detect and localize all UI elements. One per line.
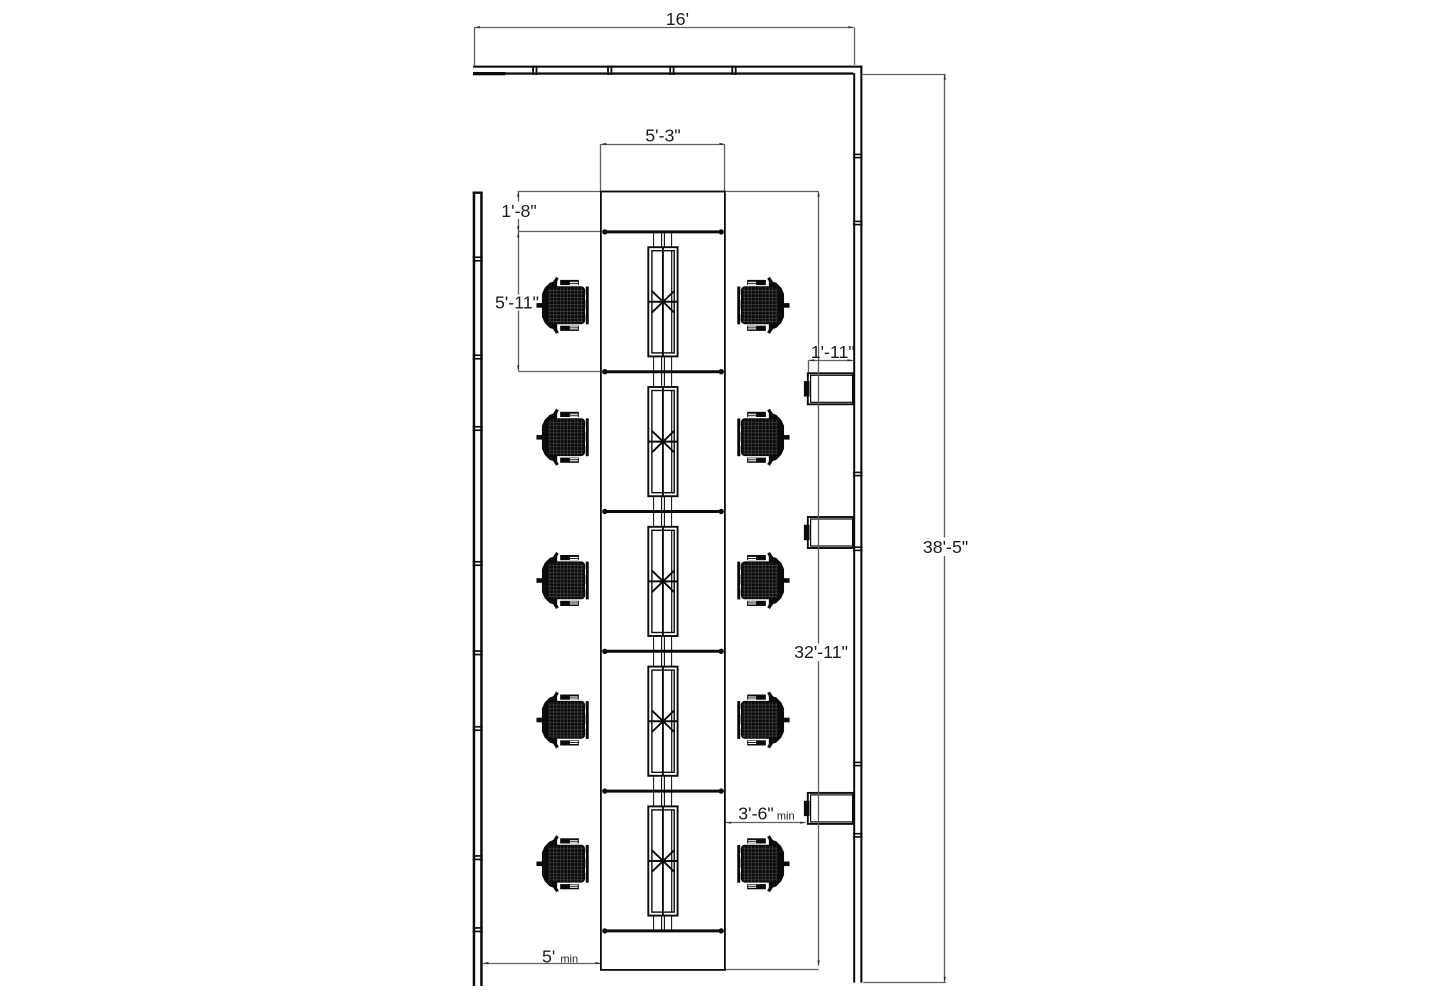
svg-text:3'-6": 3'-6": [738, 803, 773, 823]
svg-text:5'-11": 5'-11": [495, 292, 539, 312]
svg-text:38'-5": 38'-5": [923, 537, 968, 557]
svg-text:1'-11": 1'-11": [811, 342, 855, 362]
svg-text:16': 16': [666, 9, 689, 29]
svg-text:min: min: [560, 953, 578, 965]
svg-text:min: min: [777, 810, 795, 822]
svg-text:1'-8": 1'-8": [501, 201, 536, 221]
svg-text:32'-11": 32'-11": [794, 642, 848, 662]
svg-text:5'-3": 5'-3": [645, 125, 680, 145]
svg-text:5': 5': [542, 946, 555, 966]
